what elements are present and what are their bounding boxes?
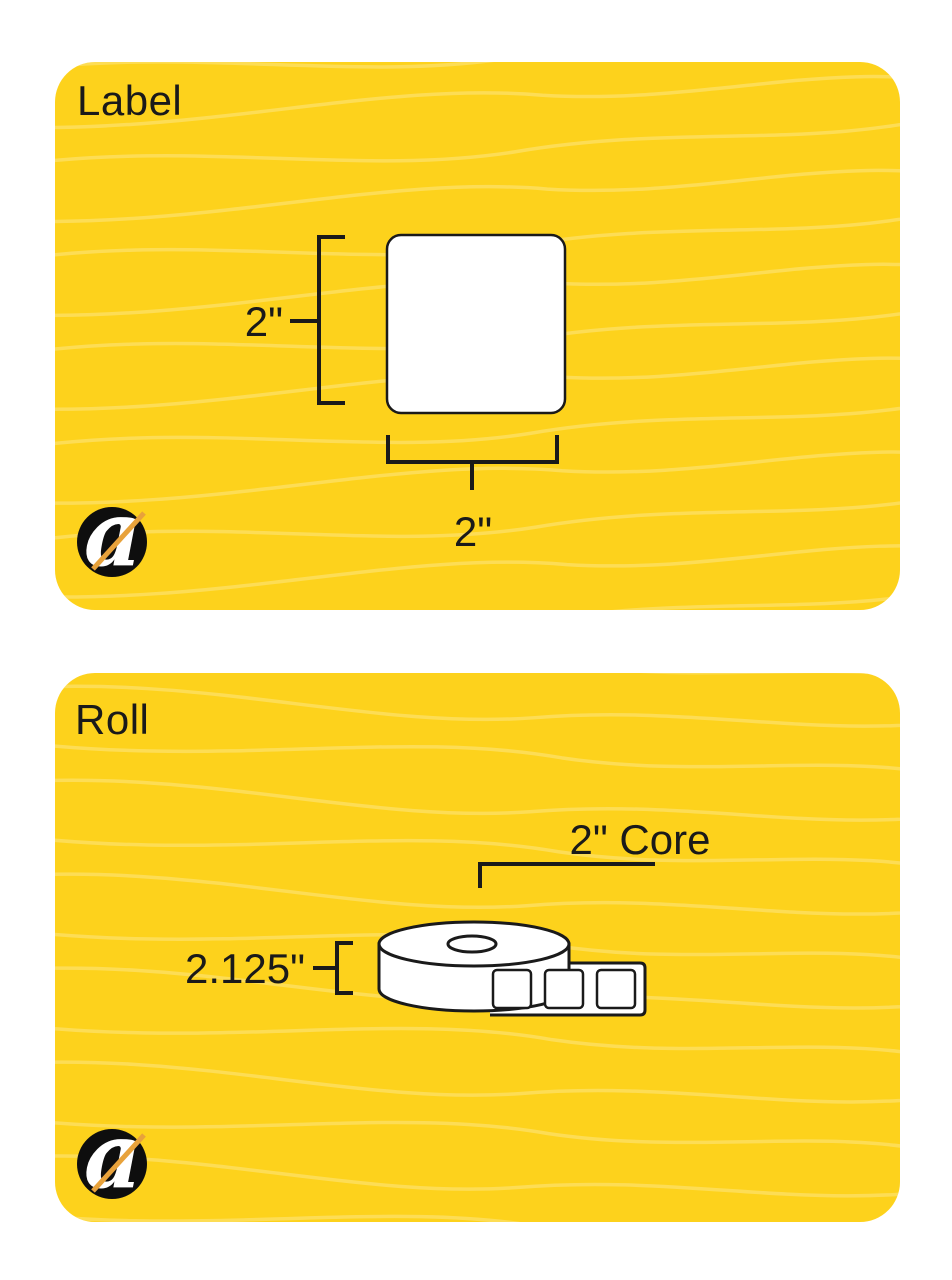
height-bracket <box>319 237 345 403</box>
roll-core-hole <box>448 936 496 952</box>
logo-letter: a <box>84 1119 142 1209</box>
strip-label-1 <box>493 970 531 1008</box>
core-dimension: 2" Core <box>570 816 711 863</box>
label-square-shape <box>387 235 565 413</box>
roll-height-dimension: 2.125" <box>185 945 305 992</box>
label-width-dimension: 2" <box>454 508 492 555</box>
strip-label-3 <box>597 970 635 1008</box>
brand-logo: a <box>67 1119 157 1209</box>
logo-letter: a <box>84 497 142 587</box>
roll-diagram: 2" Core 2.125" <box>55 673 900 1222</box>
width-bracket <box>388 435 557 462</box>
roll-height-bracket <box>337 943 353 993</box>
core-bracket <box>480 864 655 888</box>
label-height-dimension: 2" <box>245 298 283 345</box>
strip-label-2 <box>545 970 583 1008</box>
label-panel: Label 2" 2" a <box>55 62 900 610</box>
roll-panel: Roll 2" Core 2.125" a <box>55 673 900 1222</box>
brand-logo: a <box>67 497 157 587</box>
label-diagram: 2" 2" <box>55 62 900 610</box>
